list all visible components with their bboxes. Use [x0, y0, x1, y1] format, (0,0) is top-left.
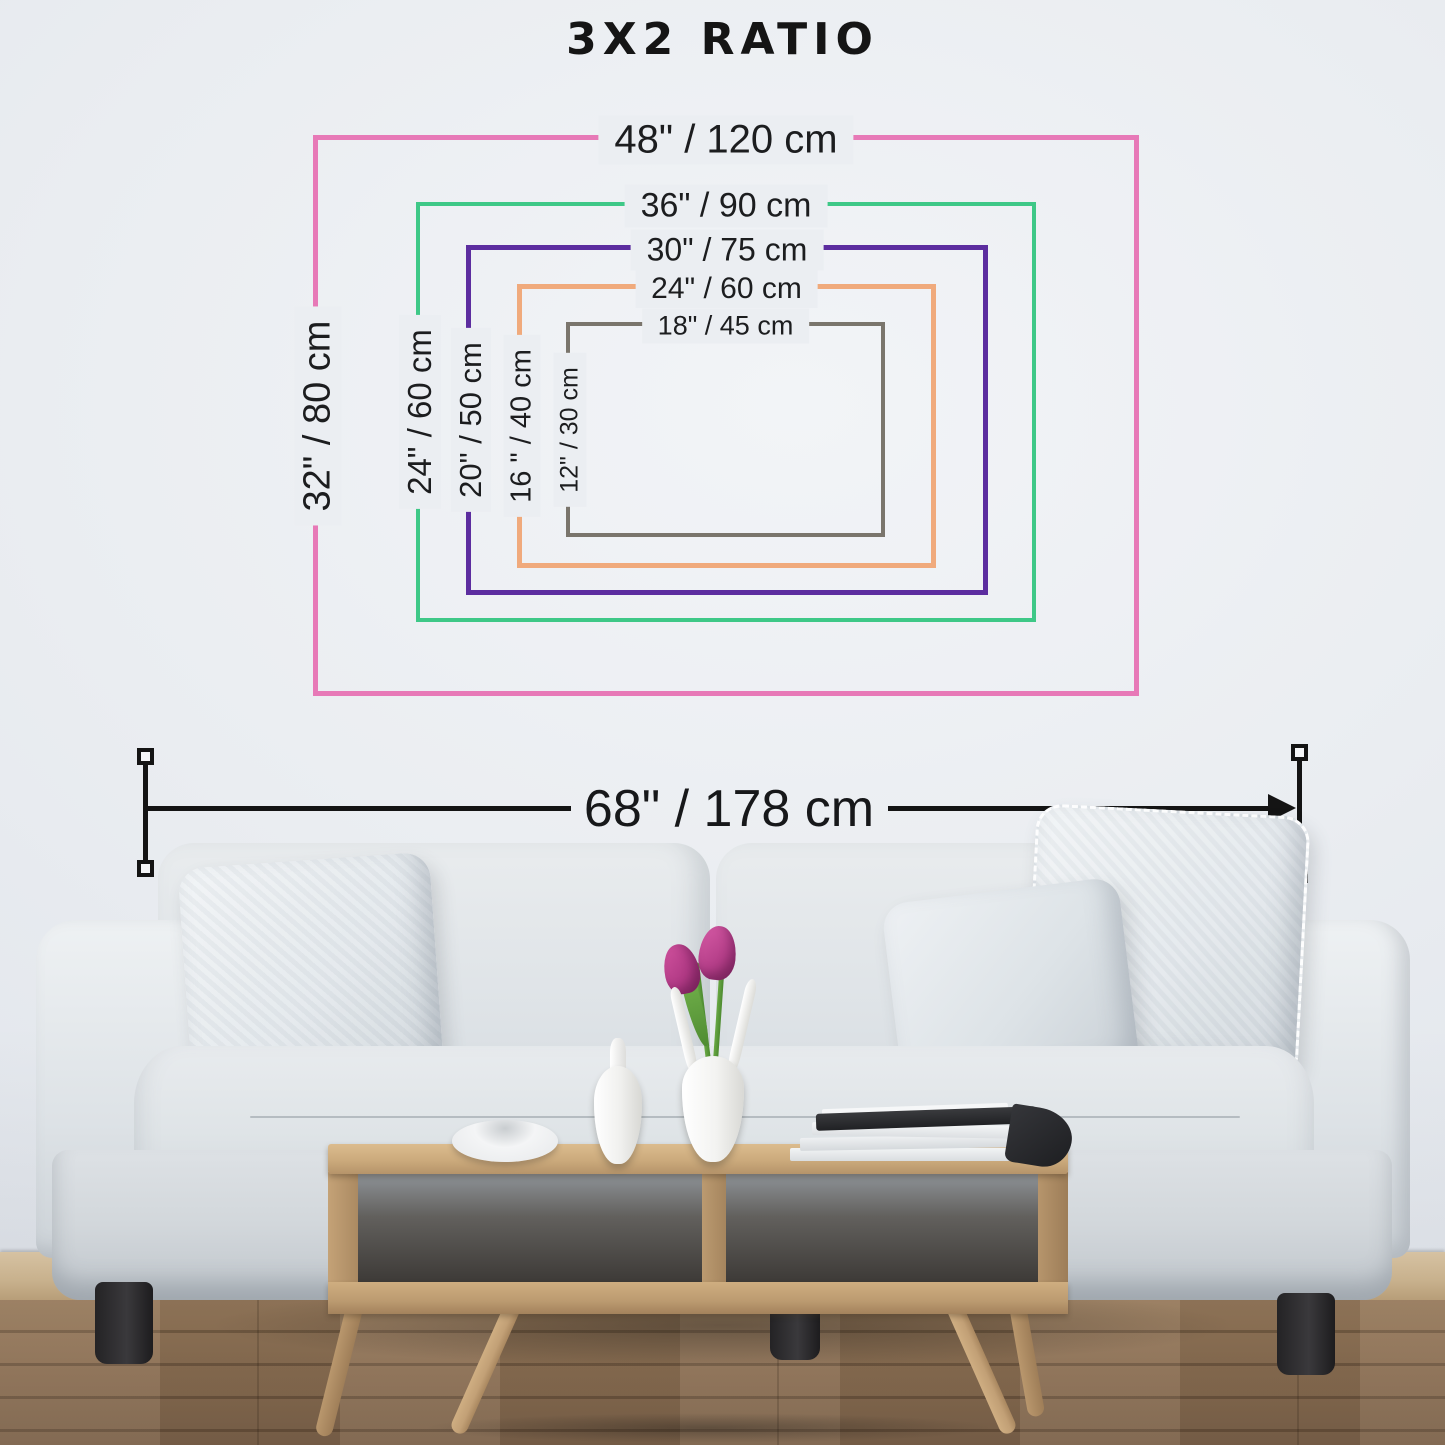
- frame-height-label: 20" / 50 cm: [451, 328, 491, 512]
- frame-width-label: 18" / 45 cm: [642, 309, 810, 344]
- frame-height-label: 32" / 80 cm: [295, 306, 342, 525]
- table-shelf-opening-right: [726, 1172, 1038, 1284]
- sofa-leg: [1277, 1293, 1335, 1375]
- size-guide-scene: 3X2 RATIO 48" / 120 cm 32" / 80 cm 36" /…: [0, 0, 1445, 1445]
- frame-width-label: 24" / 60 cm: [635, 270, 818, 308]
- measure-end-bar-left: [143, 757, 148, 869]
- frame-height-label: 12" / 30 cm: [554, 353, 587, 507]
- decor-bowl: [452, 1120, 558, 1162]
- measure-handle-square-icon: [137, 860, 154, 877]
- table-shelf-opening-left: [356, 1172, 702, 1284]
- sofa-leg: [95, 1282, 153, 1364]
- table-bottom-shelf: [328, 1282, 1068, 1314]
- frame-height-label: 24" / 60 cm: [399, 315, 441, 509]
- size-frame-18x12: 18" / 45 cm 12" / 30 cm: [566, 322, 885, 537]
- table-floor-shadow: [330, 1408, 1090, 1445]
- sofa-seat-seam: [250, 1116, 1240, 1118]
- frame-width-label: 30" / 75 cm: [631, 230, 824, 271]
- measure-line-left: [147, 806, 571, 811]
- frame-width-label: 48" / 120 cm: [598, 116, 853, 165]
- table-divider: [702, 1172, 726, 1284]
- measure-handle-square-icon: [1291, 744, 1308, 761]
- page-title: 3X2 RATIO: [566, 14, 879, 65]
- frame-height-label: 16 " / 40 cm: [504, 335, 541, 517]
- sofa-width-label: 68" / 178 cm: [584, 779, 874, 839]
- measure-handle-square-icon: [137, 748, 154, 765]
- frame-width-label: 36" / 90 cm: [625, 185, 828, 228]
